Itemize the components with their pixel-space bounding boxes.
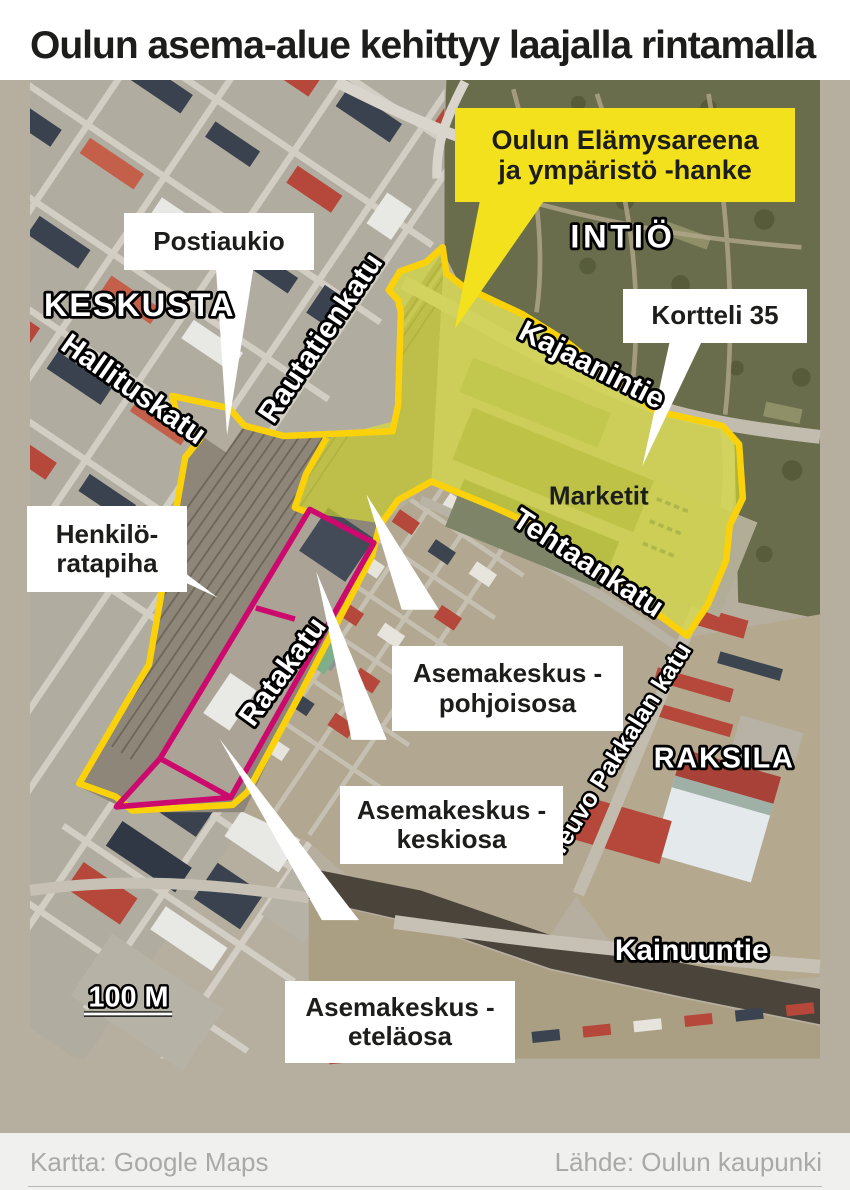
infographic-page: Oulun asema-alue kehittyy laajalla rinta… <box>0 0 850 1190</box>
place-label-marketit: Marketit <box>549 481 649 511</box>
project-callout-line2: ja ympäristö -hanke <box>498 155 752 185</box>
callout-etelaosa-line1: Asemakeskus - <box>305 993 494 1022</box>
callout-etelaosa-line2: eteläosa <box>348 1022 452 1051</box>
callout-asemakeskus-etelaosa: Asemakeskus - eteläosa <box>285 981 515 1063</box>
source-credit: Lähde: Oulun kaupunki <box>555 1147 822 1178</box>
aerial-map: KESKUSTA Hallituskatu Rautatienkatu INTI… <box>0 80 850 1133</box>
scale-bar-label: 100 M <box>89 982 169 1014</box>
callout-pohjoisosa-line1: Asemakeskus - <box>413 659 602 688</box>
map-credit: Kartta: Google Maps <box>30 1147 268 1178</box>
callout-asemakeskus-keskiosa: Asemakeskus - keskiosa <box>340 786 563 864</box>
callout-postiaukio-label: Postiaukio <box>153 227 284 256</box>
callout-pohjoisosa-line2: pohjoisosa <box>439 689 576 718</box>
project-callout: Oulun Elämysareena ja ympäristö -hanke <box>455 108 795 202</box>
district-label-keskusta: KESKUSTA <box>44 287 235 323</box>
project-callout-line1: Oulun Elämysareena <box>491 125 758 155</box>
district-label-intio: INTIÖ <box>570 218 675 254</box>
footer-rule <box>28 1186 822 1187</box>
callout-kortteli-35: Kortteli 35 <box>623 289 807 343</box>
credits-footer: Kartta: Google Maps Lähde: Oulun kaupunk… <box>0 1133 850 1190</box>
district-label-raksila: RAKSILA <box>654 743 795 775</box>
callout-henkilo-line2: ratapiha <box>56 549 157 578</box>
scale-bar: 100 M <box>84 982 172 1014</box>
callout-keskiosa-line2: keskiosa <box>397 825 507 854</box>
callout-asemakeskus-pohjoisosa: Asemakeskus - pohjoisosa <box>392 646 623 731</box>
street-label-kainuuntie: Kainuuntie <box>615 934 769 967</box>
callout-keskiosa-line1: Asemakeskus - <box>357 796 546 825</box>
callout-henkilo-line1: Henkilö- <box>56 520 159 549</box>
callout-postiaukio: Postiaukio <box>124 213 314 270</box>
page-title: Oulun asema-alue kehittyy laajalla rinta… <box>0 0 850 68</box>
callout-henkilo-ratapiha: Henkilö- ratapiha <box>27 506 187 592</box>
callout-kortteli-35-label: Kortteli 35 <box>651 301 778 330</box>
title-bar: Oulun asema-alue kehittyy laajalla rinta… <box>0 0 850 80</box>
